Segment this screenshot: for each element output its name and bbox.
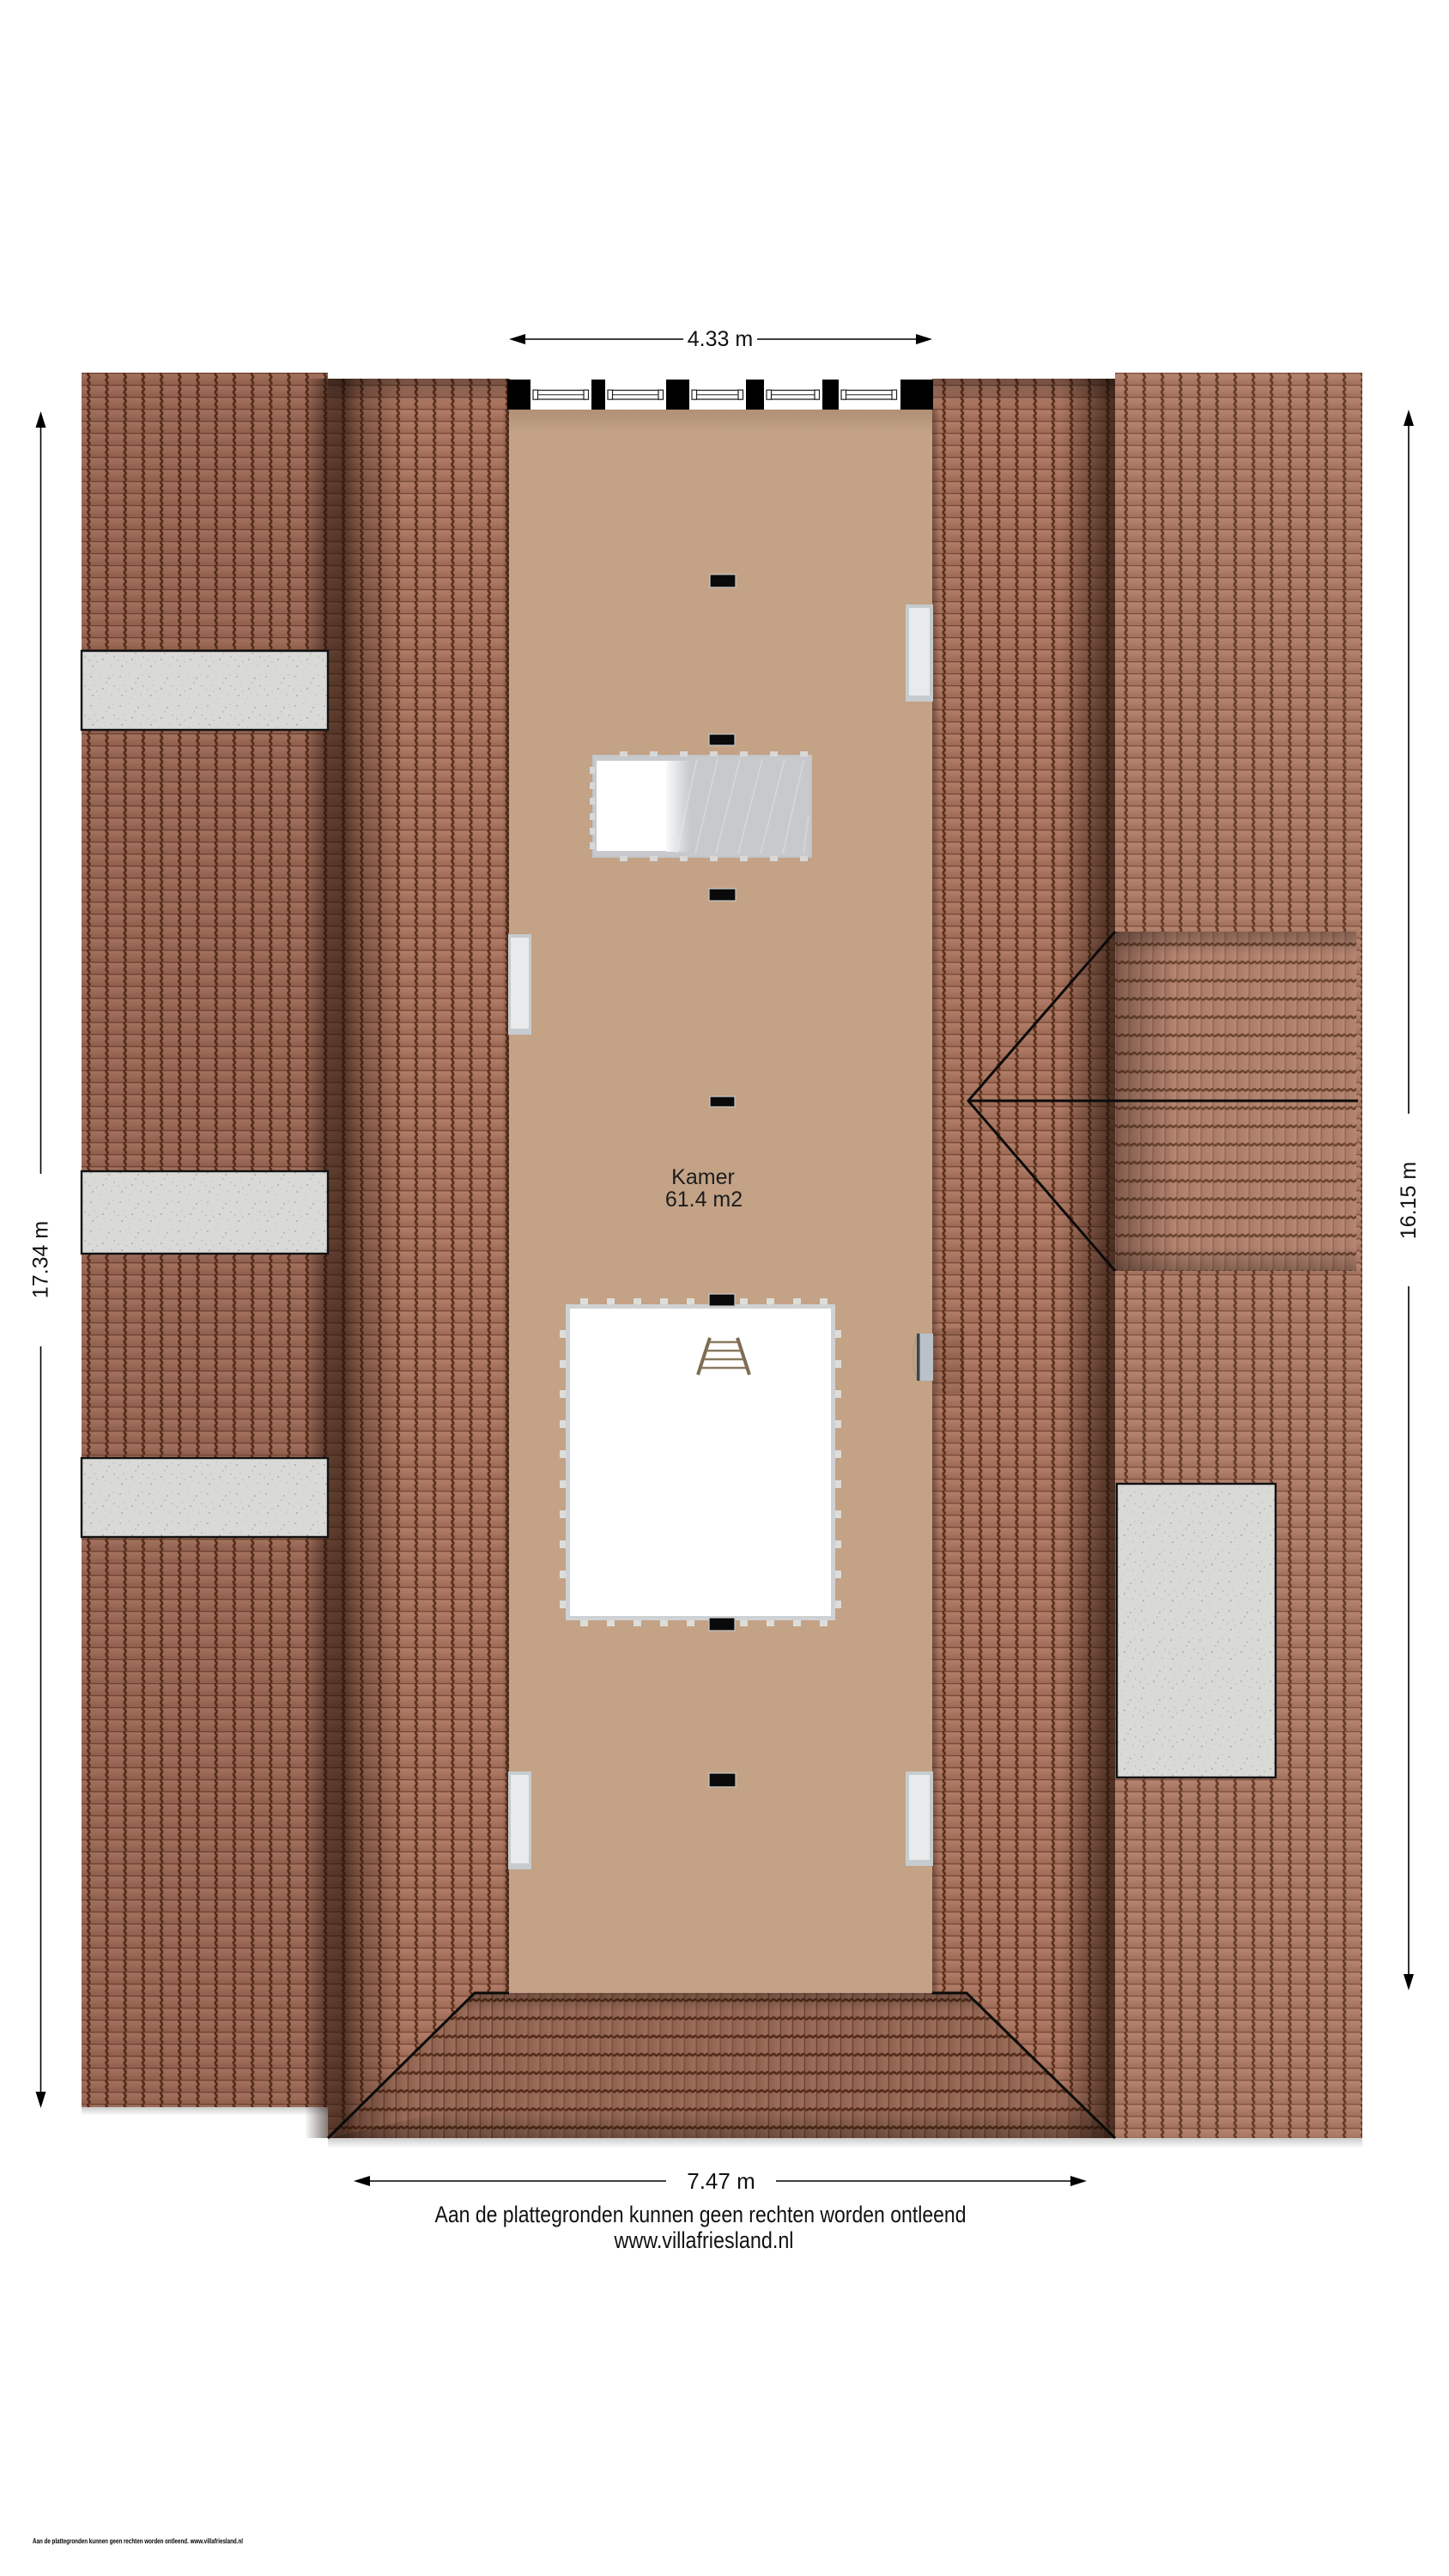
svg-text:61.4 m2: 61.4 m2 bbox=[665, 1188, 743, 1212]
svg-text:Kamer: Kamer bbox=[671, 1165, 735, 1189]
svg-text:16.15 m: 16.15 m bbox=[1397, 1162, 1421, 1239]
svg-text:17.34 m: 17.34 m bbox=[29, 1221, 53, 1298]
svg-text:Aan de plattegronden kunnen ge: Aan de plattegronden kunnen geen rechten… bbox=[33, 2537, 243, 2545]
svg-text:4.33 m: 4.33 m bbox=[688, 327, 753, 351]
svg-text:Aan de plattegronden kunnen ge: Aan de plattegronden kunnen geen rechten… bbox=[435, 2202, 967, 2227]
svg-text:7.47 m: 7.47 m bbox=[687, 2168, 755, 2194]
svg-text:www.villafriesland.nl: www.villafriesland.nl bbox=[614, 2227, 794, 2253]
